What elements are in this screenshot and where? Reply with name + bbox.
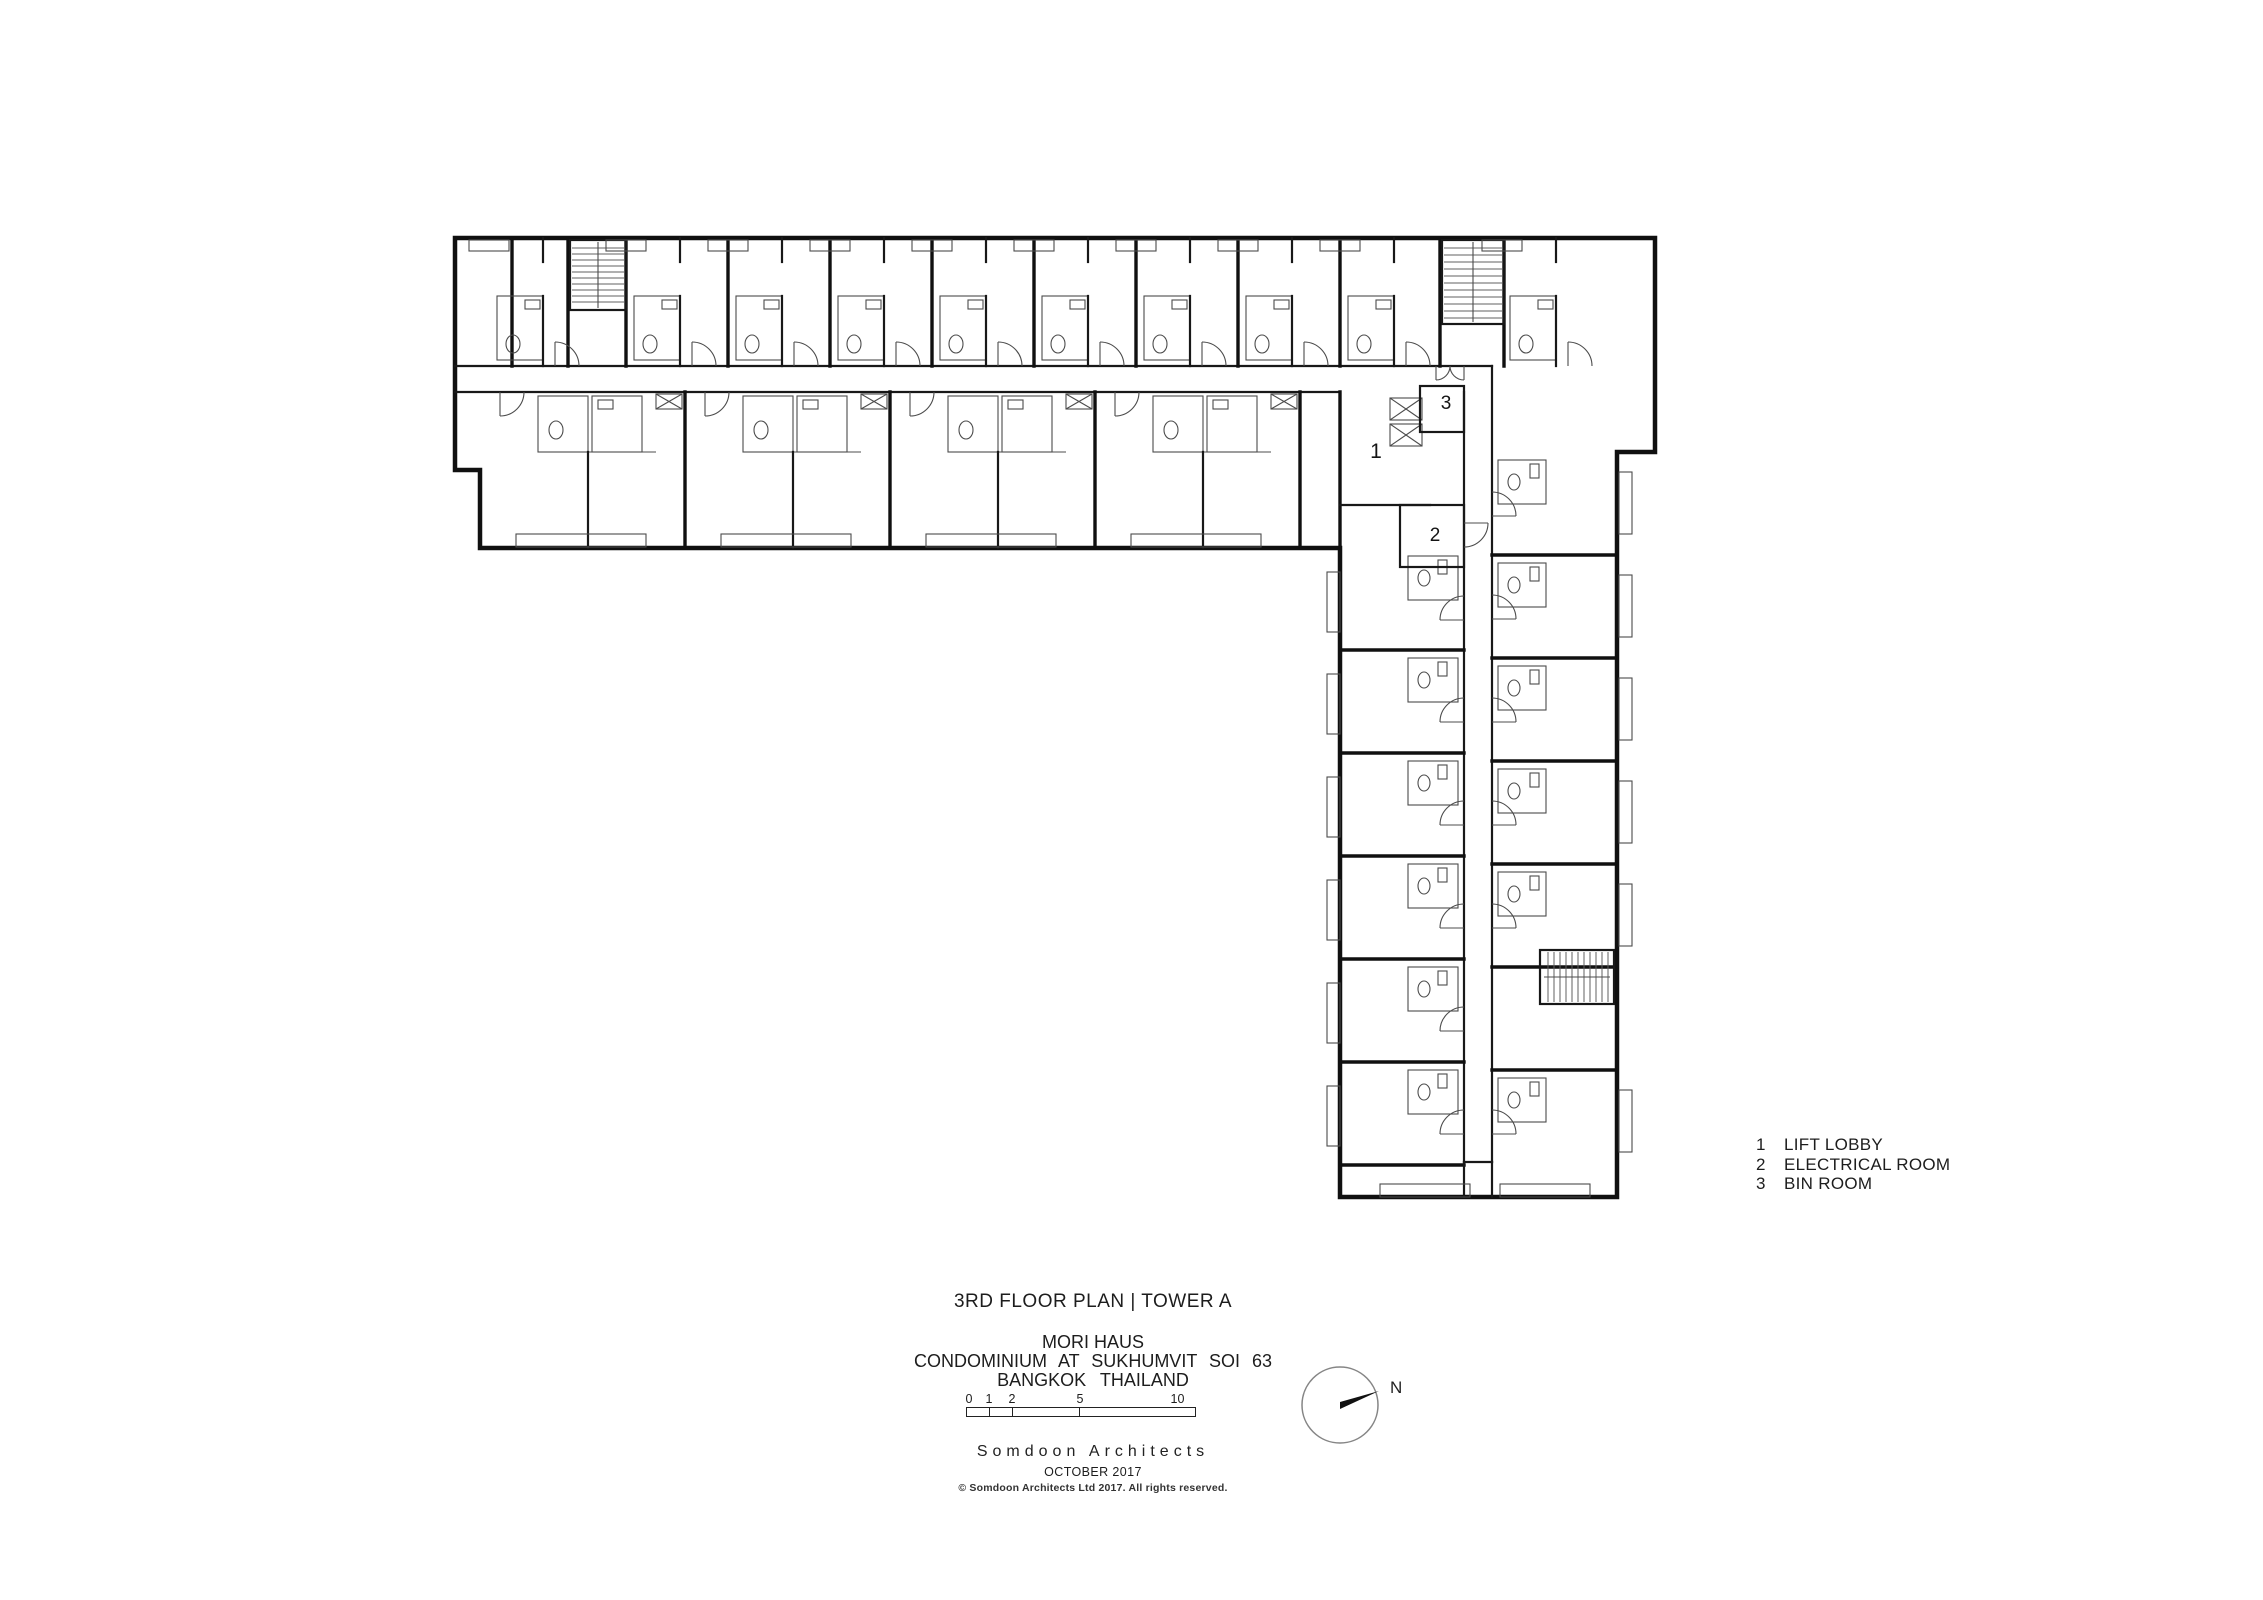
north-arrow: N bbox=[1301, 1366, 1451, 1448]
legend-label: ELECTRICAL ROOM bbox=[1784, 1155, 1950, 1175]
door-swings bbox=[500, 342, 1592, 1134]
plan-marker-electrical-room: 2 bbox=[1430, 525, 1441, 547]
scale-label-1: 1 bbox=[986, 1392, 993, 1406]
scale-bar-rule bbox=[966, 1407, 1196, 1417]
copyright-note: © Somdoon Architects Ltd 2017. All right… bbox=[858, 1482, 1328, 1494]
drawing-title: 3RD FLOOR PLAN | TOWER A bbox=[858, 1291, 1328, 1313]
title-block: 3RD FLOOR PLAN | TOWER A MORI HAUS CONDO… bbox=[858, 1291, 1328, 1390]
north-arrow-graphic bbox=[1301, 1366, 1451, 1448]
scale-label-2: 2 bbox=[1009, 1392, 1016, 1406]
legend-item-lift-lobby: 1 LIFT LOBBY bbox=[1756, 1135, 1950, 1155]
legend-number: 1 bbox=[1756, 1135, 1784, 1155]
plan-marker-bin-room: 3 bbox=[1441, 393, 1452, 415]
issue-date: OCTOBER 2017 bbox=[858, 1465, 1328, 1479]
room-legend: 1 LIFT LOBBY 2 ELECTRICAL ROOM 3 BIN ROO… bbox=[1756, 1135, 1950, 1194]
scale-tick bbox=[1012, 1408, 1013, 1416]
sheet-footer: Somdoon Architects OCTOBER 2017 © Somdoo… bbox=[858, 1443, 1328, 1494]
legend-number: 3 bbox=[1756, 1174, 1784, 1194]
north-label: N bbox=[1390, 1378, 1402, 1398]
scale-tick bbox=[989, 1408, 990, 1416]
scale-bar: 0 1 2 5 10 M bbox=[966, 1392, 1196, 1418]
balconies bbox=[469, 240, 1632, 1197]
scale-label-5: 5 bbox=[1077, 1392, 1084, 1406]
drawing-sheet: 1 2 3 1 LIFT LOBBY 2 ELECTRICAL ROOM 3 B… bbox=[0, 0, 2263, 1600]
north-needle bbox=[1340, 1391, 1379, 1409]
project-name: MORI HAUS bbox=[858, 1333, 1328, 1352]
legend-label: BIN ROOM bbox=[1784, 1174, 1872, 1194]
core-rooms bbox=[1340, 386, 1488, 567]
legend-item-electrical-room: 2 ELECTRICAL ROOM bbox=[1756, 1155, 1950, 1175]
scale-tick bbox=[1079, 1408, 1080, 1416]
legend-label: LIFT LOBBY bbox=[1784, 1135, 1883, 1155]
project-subtitle: CONDOMINIUM AT SUKHUMVIT SOI 63 bbox=[858, 1352, 1328, 1371]
scale-label-0: 0 bbox=[966, 1392, 973, 1406]
legend-number: 2 bbox=[1756, 1155, 1784, 1175]
building-outline bbox=[455, 238, 1655, 1197]
bathroom-pods bbox=[497, 238, 1556, 1122]
legend-item-bin-room: 3 BIN ROOM bbox=[1756, 1174, 1950, 1194]
project-location: BANGKOK THAILAND bbox=[858, 1371, 1328, 1390]
plan-marker-lift-lobby: 1 bbox=[1370, 440, 1382, 464]
unit-partition-walls bbox=[512, 238, 1617, 1197]
firm-name: Somdoon Architects bbox=[858, 1443, 1328, 1461]
